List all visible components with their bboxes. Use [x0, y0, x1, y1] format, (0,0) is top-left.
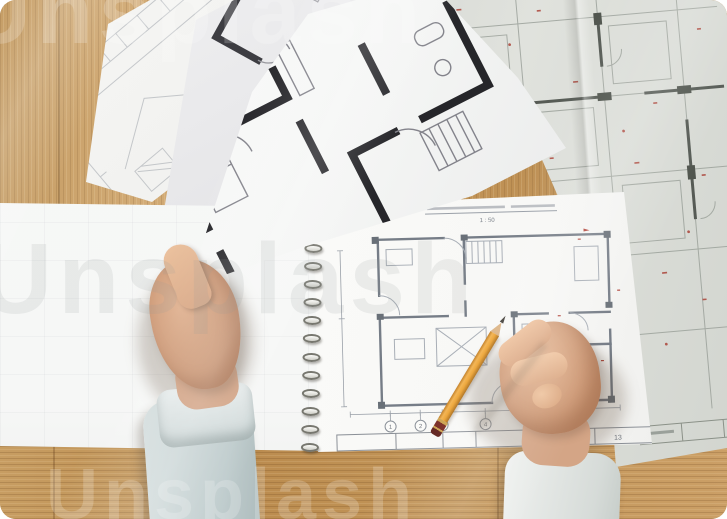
spiral-coil [301, 425, 319, 434]
photo-canvas: 1 : 50 [0, 0, 727, 519]
sheet-number: 13 [614, 435, 622, 442]
plan-scale-note: 1 : 50 [480, 218, 496, 224]
spiral-coil [302, 406, 320, 415]
spiral-coil [303, 298, 321, 307]
spiral-coil [302, 370, 320, 379]
spiral-coil [304, 262, 322, 271]
spiral-coil [302, 352, 320, 361]
spiral-coil [302, 388, 320, 397]
spiral-coil [303, 334, 321, 343]
spiral-coil [303, 316, 321, 325]
spiral-coil [301, 443, 319, 452]
wood-plank-seam [58, 0, 60, 235]
spiral-coil [304, 280, 322, 289]
